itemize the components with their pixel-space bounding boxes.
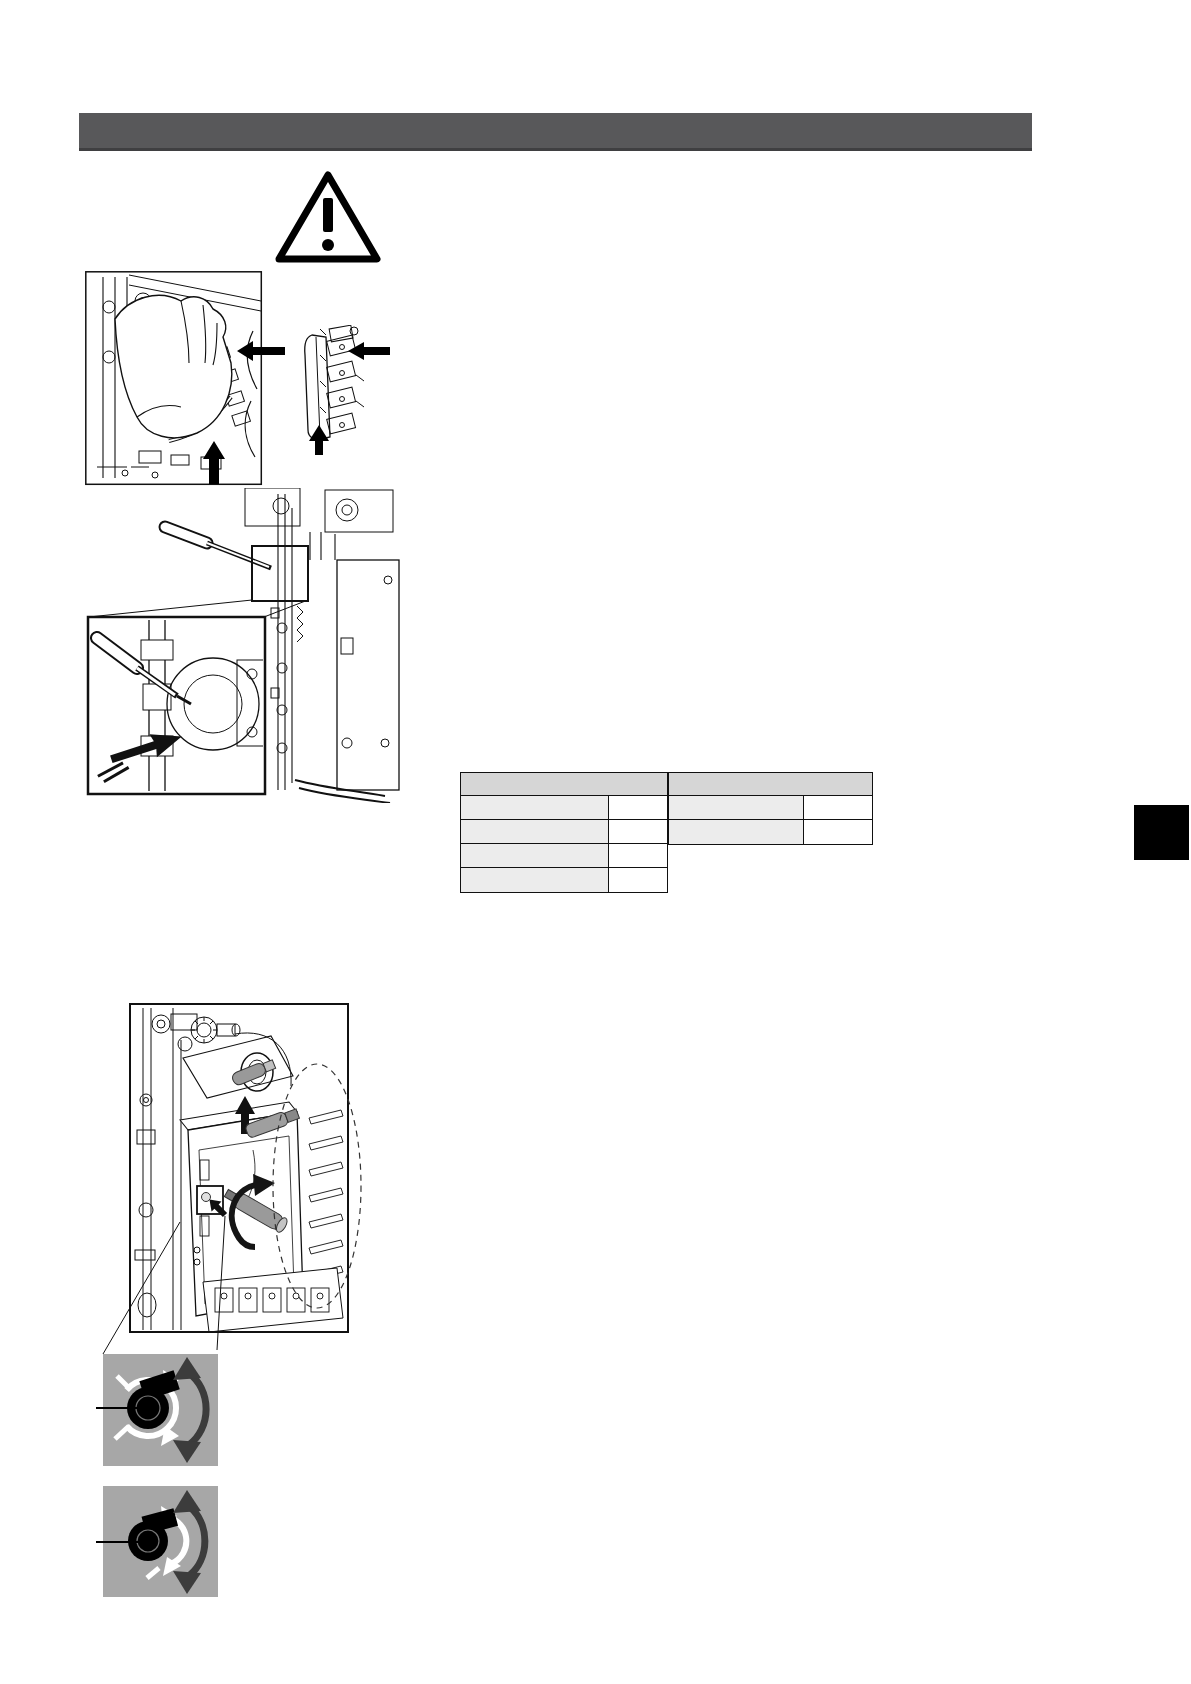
settings-table-left [460, 772, 668, 893]
table-cell-label [669, 796, 804, 819]
figure-hand-removing-connector-block [85, 271, 290, 488]
boiler-side-drawing [245, 488, 399, 803]
manual-page [0, 0, 1191, 1684]
detail-callout-box [252, 546, 308, 601]
terminal-blocks [215, 1288, 329, 1312]
table-header [669, 773, 872, 796]
table-cell-label [461, 868, 609, 892]
knob-rotation-diagram-1 [103, 1354, 218, 1466]
section-header-bar [79, 113, 1032, 151]
table-row [461, 820, 667, 844]
table-cell-label [669, 820, 804, 844]
table-row [669, 796, 872, 820]
callout-projection-line [89, 600, 252, 617]
figure-screwdriver-magnified-inset [85, 488, 410, 803]
warning-triangle-icon [274, 168, 382, 266]
table-cell-label [461, 796, 609, 819]
figure-control-box [85, 1000, 377, 1362]
figure-connector-terminal-strip [290, 325, 400, 460]
table-header [461, 773, 667, 796]
settings-table-right [668, 772, 873, 845]
table-cell-value [609, 796, 667, 819]
table-cell-label [461, 820, 609, 843]
table-cell-value [804, 796, 872, 819]
knob-leader-line [96, 1541, 146, 1543]
knob-leader-line [96, 1407, 146, 1409]
chapter-thumb-tab [1134, 805, 1189, 860]
table-row [461, 844, 667, 868]
table-cell-value [804, 820, 872, 844]
table-row [461, 868, 667, 892]
table-cell-value [609, 844, 667, 867]
table-row [669, 820, 872, 844]
table-cell-label [461, 844, 609, 867]
table-row [461, 796, 667, 820]
table-cell-value [609, 868, 667, 892]
adjustment-screw [202, 1193, 211, 1202]
table-cell-value [609, 820, 667, 843]
screwdriver [165, 527, 271, 568]
